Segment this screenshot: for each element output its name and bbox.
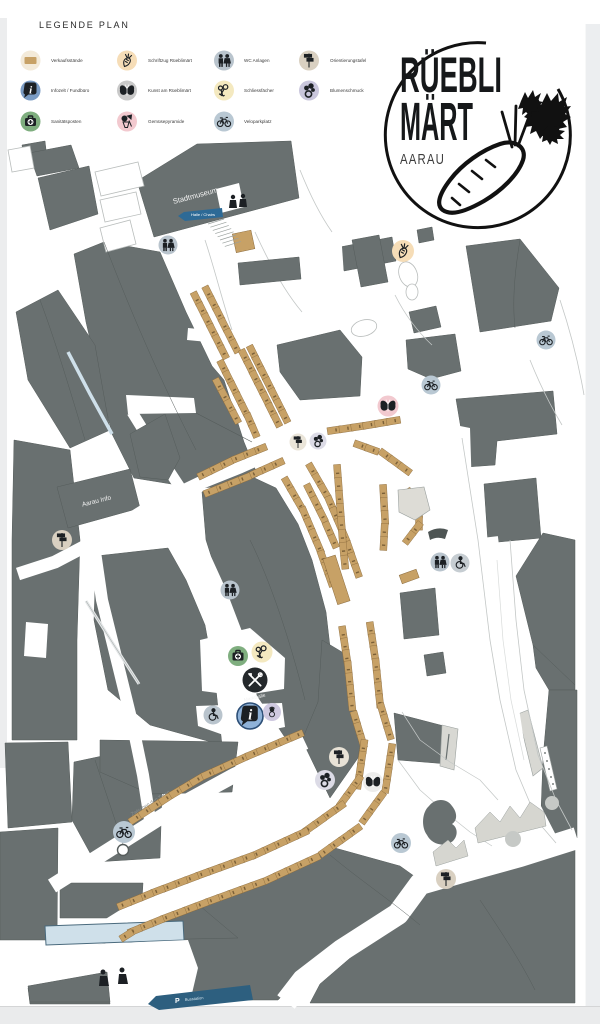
svg-text:i: i <box>248 708 252 724</box>
svg-text:AARAU: AARAU <box>400 151 445 168</box>
svg-text:P: P <box>175 998 180 1005</box>
svg-text:MÄRT: MÄRT <box>400 92 473 152</box>
